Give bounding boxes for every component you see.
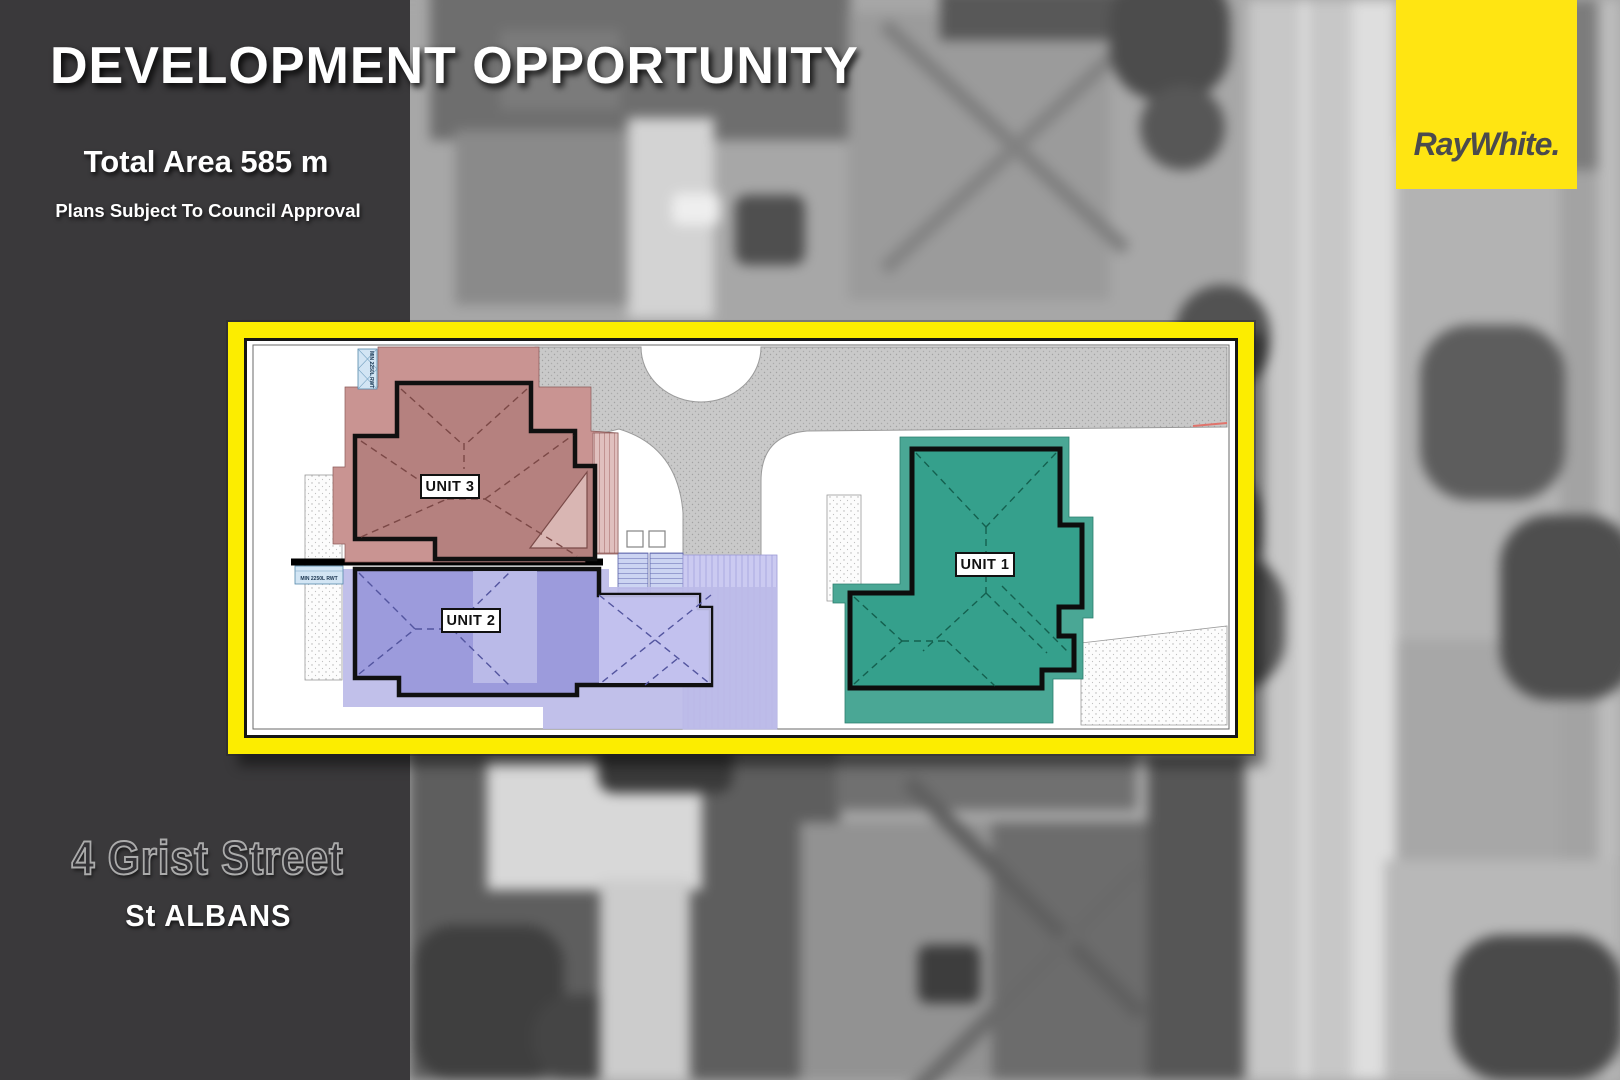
aerial-shape [1420, 325, 1565, 500]
svg-text:MIN 2250L RWT: MIN 2250L RWT [300, 576, 337, 582]
aerial-shape [918, 945, 980, 1003]
site-plan: MIN 2250L RWT MIN 2250L RWT UNIT 3 UNIT … [244, 338, 1238, 738]
aerial-shape [672, 193, 720, 225]
total-area-text: Total Area 585 m [0, 144, 412, 180]
unit-1-label: UNIT 1 [956, 553, 1014, 576]
ray-white-logo: RayWhite. [1396, 0, 1577, 189]
unit-2-building [343, 569, 777, 729]
aerial-shape [455, 130, 640, 305]
aerial-shape [1452, 935, 1620, 1080]
approval-note: Plans Subject To Council Approval [0, 200, 416, 222]
hatched-area-right [1081, 626, 1227, 725]
bin-square [627, 531, 643, 547]
site-plan-svg: MIN 2250L RWT MIN 2250L RWT UNIT 3 UNIT … [247, 341, 1235, 735]
aerial-shape [1148, 756, 1244, 1080]
unit-3-label: UNIT 3 [421, 475, 479, 498]
svg-text:MIN 2250L RWT: MIN 2250L RWT [368, 351, 374, 388]
bin-square [649, 531, 665, 547]
plan-frame: MIN 2250L RWT MIN 2250L RWT UNIT 3 UNIT … [228, 322, 1254, 754]
aerial-shape [940, 0, 1120, 40]
flyer: DEVELOPMENT OPPORTUNITY Total Area 585 m… [0, 0, 1620, 1080]
aerial-shape [1110, 0, 1230, 100]
address-street: 4 Grist Street [0, 830, 416, 885]
aerial-shape [600, 880, 690, 1080]
tank-label-left: MIN 2250L RWT [295, 566, 343, 584]
svg-text:UNIT 2: UNIT 2 [447, 613, 496, 629]
page-title: DEVELOPMENT OPPORTUNITY [50, 36, 859, 96]
svg-text:UNIT 3: UNIT 3 [426, 479, 475, 495]
aerial-shape [1302, 0, 1307, 1080]
aerial-shape [1248, 0, 1354, 1080]
aerial-shape [1140, 85, 1225, 170]
ray-white-wordmark: RayWhite. [1396, 126, 1577, 163]
address-suburb: St ALBANS [0, 898, 416, 934]
aerial-shape [1500, 515, 1620, 700]
tank-label-top: MIN 2250L RWT [358, 349, 377, 389]
aerial-shape [735, 195, 805, 265]
aerial-shape [836, 750, 1136, 810]
svg-text:UNIT 1: UNIT 1 [961, 557, 1010, 573]
unit-2-label: UNIT 2 [442, 609, 500, 632]
